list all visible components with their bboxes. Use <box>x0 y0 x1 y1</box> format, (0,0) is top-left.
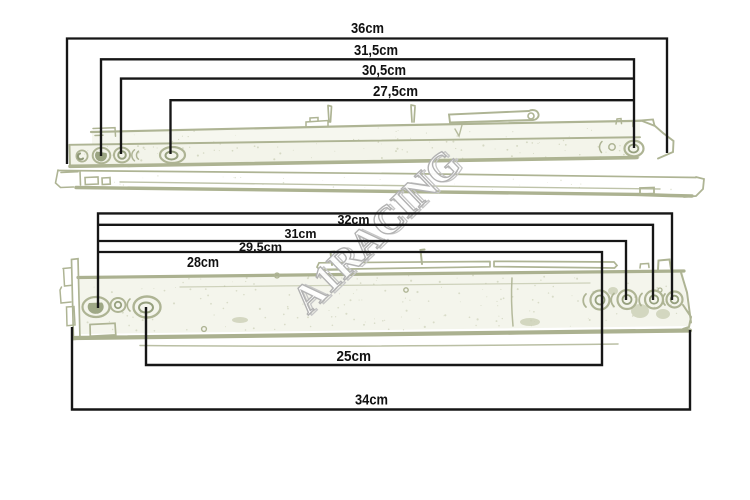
svg-text:25cm: 25cm <box>337 349 372 365</box>
svg-text:27,5cm: 27,5cm <box>373 83 418 100</box>
svg-text:32cm: 32cm <box>338 212 370 227</box>
svg-text:36cm: 36cm <box>351 20 384 37</box>
svg-text:31cm: 31cm <box>285 226 317 241</box>
svg-text:31,5cm: 31,5cm <box>354 42 398 59</box>
svg-text:29.5cm: 29.5cm <box>239 242 282 254</box>
svg-text:34cm: 34cm <box>355 392 388 409</box>
svg-text:30,5cm: 30,5cm <box>362 62 406 79</box>
svg-text:28cm: 28cm <box>187 255 219 271</box>
